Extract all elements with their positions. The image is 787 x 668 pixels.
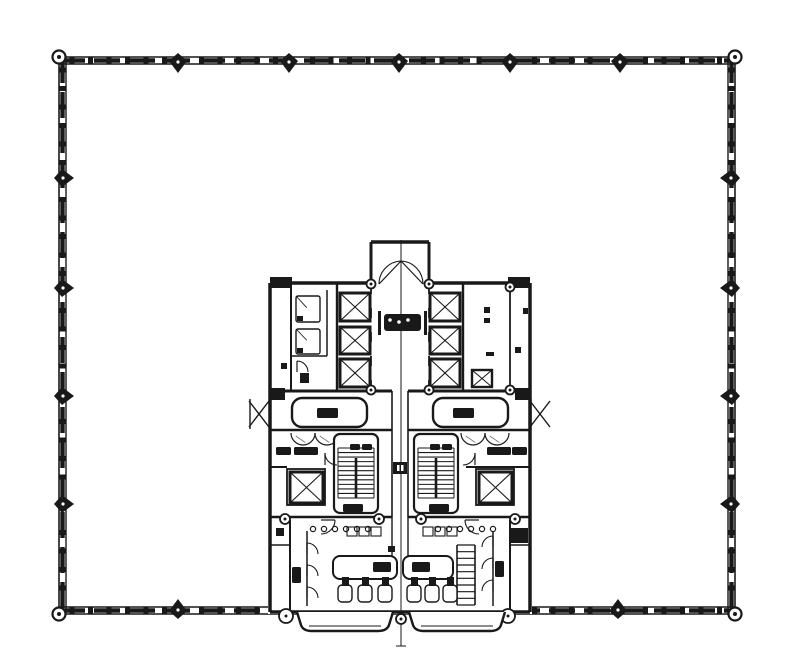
badge-bracket bbox=[378, 311, 381, 335]
wall-corner-post bbox=[515, 388, 530, 400]
core-floor-area bbox=[530, 397, 555, 431]
wall-junction-dot bbox=[378, 518, 381, 521]
window-mullion-tick bbox=[569, 607, 574, 613]
corner-column-dot bbox=[733, 55, 737, 59]
floor-plan-page bbox=[0, 0, 787, 668]
window-mullion-tick bbox=[236, 607, 241, 613]
window-mullion-tick bbox=[728, 530, 734, 535]
plan-speck bbox=[515, 347, 521, 353]
window-mullion-tick bbox=[59, 234, 65, 239]
badge-bracket bbox=[424, 311, 427, 335]
corner-column-dot bbox=[57, 612, 61, 616]
window-mullion-tick bbox=[59, 345, 65, 350]
wall-junction-dot bbox=[285, 615, 288, 618]
facade-bay-bulge bbox=[409, 612, 505, 631]
window-mullion-tick bbox=[59, 160, 65, 165]
window-mullion-tick bbox=[662, 607, 667, 613]
window-mullion-tick bbox=[59, 438, 65, 443]
window-mullion-tick bbox=[728, 419, 734, 424]
window-mullion-tick bbox=[728, 86, 734, 91]
window-mullion-tick bbox=[551, 607, 556, 613]
room-label-blob bbox=[343, 504, 363, 512]
window-mullion-tick bbox=[59, 68, 65, 73]
column-marker-center-dot bbox=[729, 176, 732, 179]
window-mullion-tick bbox=[477, 57, 482, 63]
window-mullion-tick bbox=[532, 57, 537, 63]
window-mullion-tick bbox=[728, 567, 734, 572]
plan-speck bbox=[300, 373, 309, 383]
column-marker-center-dot bbox=[61, 502, 64, 505]
wall-corner-post bbox=[509, 528, 528, 543]
room-label-blob bbox=[512, 447, 527, 455]
corner-column-dot bbox=[57, 55, 61, 59]
window-mullion-tick bbox=[59, 530, 65, 535]
shaft-panel-notch bbox=[297, 316, 303, 321]
wall-junction-dot bbox=[420, 518, 423, 521]
toilet-tank bbox=[447, 577, 454, 586]
wall-junction-dot bbox=[400, 618, 403, 621]
window-mullion-tick bbox=[59, 586, 65, 591]
column-marker-center-dot bbox=[508, 60, 511, 63]
window-mullion-tick bbox=[728, 271, 734, 276]
window-mullion-tick bbox=[347, 57, 352, 63]
window-mullion-tick bbox=[236, 57, 241, 63]
lobby-name-badge bbox=[384, 314, 421, 331]
toilet-fixture bbox=[378, 585, 392, 602]
toilet-fixture bbox=[443, 585, 457, 602]
column-marker-center-dot bbox=[729, 286, 732, 289]
window-mullion-tick bbox=[728, 308, 734, 313]
window-mullion-tick bbox=[59, 197, 65, 202]
wall-corner-post bbox=[270, 388, 285, 400]
window-mullion-tick bbox=[728, 216, 734, 221]
wall-junction-dot bbox=[428, 283, 431, 286]
window-mullion-tick bbox=[59, 419, 65, 424]
window-mullion-tick bbox=[59, 327, 65, 332]
toilet-fixture bbox=[407, 585, 421, 602]
window-mullion-tick bbox=[551, 57, 556, 63]
window-mullion-tick bbox=[125, 57, 130, 63]
room-label-blob bbox=[412, 562, 430, 572]
column-marker-center-dot bbox=[397, 60, 400, 63]
plan-speck bbox=[276, 528, 284, 536]
plan-speck bbox=[484, 318, 490, 323]
window-mullion-tick bbox=[588, 607, 593, 613]
window-mullion-tick bbox=[440, 57, 445, 63]
window-mullion-tick bbox=[59, 475, 65, 480]
window-mullion-tick bbox=[107, 607, 112, 613]
window-mullion-tick bbox=[728, 345, 734, 350]
window-mullion-tick bbox=[59, 253, 65, 258]
window-mullion-tick bbox=[88, 57, 93, 63]
window-mullion-tick bbox=[643, 57, 648, 63]
room-label-blob bbox=[362, 444, 372, 450]
toilet-tank bbox=[342, 577, 349, 586]
toilet-fixture bbox=[338, 585, 352, 602]
window-mullion-tick bbox=[717, 57, 722, 63]
window-mullion-tick bbox=[458, 57, 463, 63]
window-mullion-tick bbox=[728, 456, 734, 461]
column-marker-center-dot bbox=[729, 502, 732, 505]
wall-junction-dot bbox=[370, 283, 373, 286]
window-mullion-tick bbox=[310, 57, 315, 63]
window-mullion-tick bbox=[59, 142, 65, 147]
window-mullion-tick bbox=[255, 607, 260, 613]
window-mullion-tick bbox=[125, 607, 130, 613]
window-mullion-tick bbox=[680, 607, 685, 613]
room-label-blob bbox=[292, 567, 301, 583]
window-mullion-tick bbox=[59, 86, 65, 91]
column-marker-center-dot bbox=[176, 60, 179, 63]
wall-junction-dot bbox=[514, 518, 517, 521]
room-label-blob bbox=[429, 504, 449, 512]
room-label-blob bbox=[317, 408, 338, 418]
window-mullion-tick bbox=[59, 364, 65, 369]
window-mullion-tick bbox=[588, 57, 593, 63]
corridor-junction-box bbox=[393, 462, 407, 474]
facade-bay-bulge bbox=[297, 612, 393, 631]
plan-speck bbox=[484, 307, 490, 313]
column-marker-center-dot bbox=[729, 394, 732, 397]
window-mullion-tick bbox=[728, 327, 734, 332]
column-marker-center-dot bbox=[176, 608, 179, 611]
plan-speck bbox=[523, 308, 528, 314]
window-mullion-tick bbox=[107, 57, 112, 63]
corner-column-dot bbox=[733, 612, 737, 616]
badge-text-mark bbox=[397, 320, 401, 324]
window-mullion-tick bbox=[728, 142, 734, 147]
window-mullion-tick bbox=[680, 57, 685, 63]
room-label-blob bbox=[430, 444, 440, 450]
wall-junction-dot bbox=[284, 518, 287, 521]
window-mullion-tick bbox=[728, 586, 734, 591]
plan-speck bbox=[388, 546, 395, 552]
wall-junction-dot bbox=[370, 389, 373, 392]
window-mullion-tick bbox=[728, 68, 734, 73]
wall-junction-dot bbox=[507, 615, 510, 618]
window-mullion-tick bbox=[728, 197, 734, 202]
window-mullion-tick bbox=[662, 57, 667, 63]
column-marker-center-dot bbox=[61, 176, 64, 179]
window-mullion-tick bbox=[70, 57, 75, 63]
window-mullion-tick bbox=[59, 308, 65, 313]
room-label-blob bbox=[276, 447, 291, 455]
column-marker-center-dot bbox=[618, 60, 621, 63]
window-mullion-tick bbox=[59, 123, 65, 128]
window-mullion-tick bbox=[532, 607, 537, 613]
window-mullion-tick bbox=[699, 57, 704, 63]
column-marker-center-dot bbox=[616, 608, 619, 611]
column-marker-center-dot bbox=[287, 60, 290, 63]
junction-slit bbox=[397, 465, 400, 471]
window-mullion-tick bbox=[699, 607, 704, 613]
window-mullion-tick bbox=[162, 57, 167, 63]
window-mullion-tick bbox=[728, 364, 734, 369]
window-mullion-tick bbox=[643, 607, 648, 613]
wall-junction-dot bbox=[428, 389, 431, 392]
toilet-tank bbox=[411, 577, 418, 586]
window-mullion-tick bbox=[199, 57, 204, 63]
window-mullion-tick bbox=[273, 57, 278, 63]
window-mullion-tick bbox=[728, 438, 734, 443]
toilet-fixture bbox=[425, 585, 439, 602]
window-mullion-tick bbox=[728, 123, 734, 128]
window-mullion-tick bbox=[59, 456, 65, 461]
room-label-blob bbox=[294, 447, 318, 455]
floor-plan-drawing bbox=[0, 0, 787, 668]
toilet-tank bbox=[429, 577, 436, 586]
window-mullion-tick bbox=[329, 57, 334, 63]
junction-slit bbox=[401, 465, 404, 471]
window-mullion-tick bbox=[728, 549, 734, 554]
room-label-blob bbox=[350, 444, 360, 450]
plan-speck bbox=[281, 363, 287, 369]
room-label-blob bbox=[487, 447, 511, 455]
window-mullion-tick bbox=[199, 607, 204, 613]
window-mullion-tick bbox=[162, 607, 167, 613]
window-mullion-tick bbox=[59, 271, 65, 276]
window-mullion-tick bbox=[569, 57, 574, 63]
room-label-blob bbox=[453, 408, 474, 418]
window-mullion-tick bbox=[70, 607, 75, 613]
window-mullion-tick bbox=[728, 234, 734, 239]
window-mullion-tick bbox=[421, 57, 426, 63]
column-marker-center-dot bbox=[61, 394, 64, 397]
column-marker-center-dot bbox=[61, 286, 64, 289]
room-label-blob bbox=[373, 562, 391, 572]
room-label-blob bbox=[442, 444, 452, 450]
window-mullion-tick bbox=[59, 549, 65, 554]
window-mullion-tick bbox=[144, 607, 149, 613]
badge-text-mark bbox=[388, 318, 392, 322]
room-label-blob bbox=[495, 561, 504, 577]
window-mullion-tick bbox=[366, 57, 371, 63]
window-mullion-tick bbox=[728, 475, 734, 480]
wall-corner-post bbox=[270, 277, 292, 288]
window-mullion-tick bbox=[59, 105, 65, 110]
window-mullion-tick bbox=[728, 253, 734, 258]
window-mullion-tick bbox=[728, 105, 734, 110]
window-mullion-tick bbox=[218, 57, 223, 63]
window-mullion-tick bbox=[717, 607, 722, 613]
wall-junction-dot bbox=[509, 286, 512, 289]
window-mullion-tick bbox=[255, 57, 260, 63]
window-mullion-tick bbox=[218, 607, 223, 613]
window-mullion-tick bbox=[144, 57, 149, 63]
badge-text-mark bbox=[406, 318, 410, 322]
toilet-fixture bbox=[358, 585, 372, 602]
wall-junction-dot bbox=[509, 389, 512, 392]
toilet-tank bbox=[362, 577, 369, 586]
plan-speck bbox=[486, 352, 494, 356]
shaft-panel-notch bbox=[297, 348, 303, 353]
window-mullion-tick bbox=[88, 607, 93, 613]
toilet-tank bbox=[382, 577, 389, 586]
window-mullion-tick bbox=[728, 160, 734, 165]
window-mullion-tick bbox=[59, 216, 65, 221]
window-mullion-tick bbox=[59, 567, 65, 572]
